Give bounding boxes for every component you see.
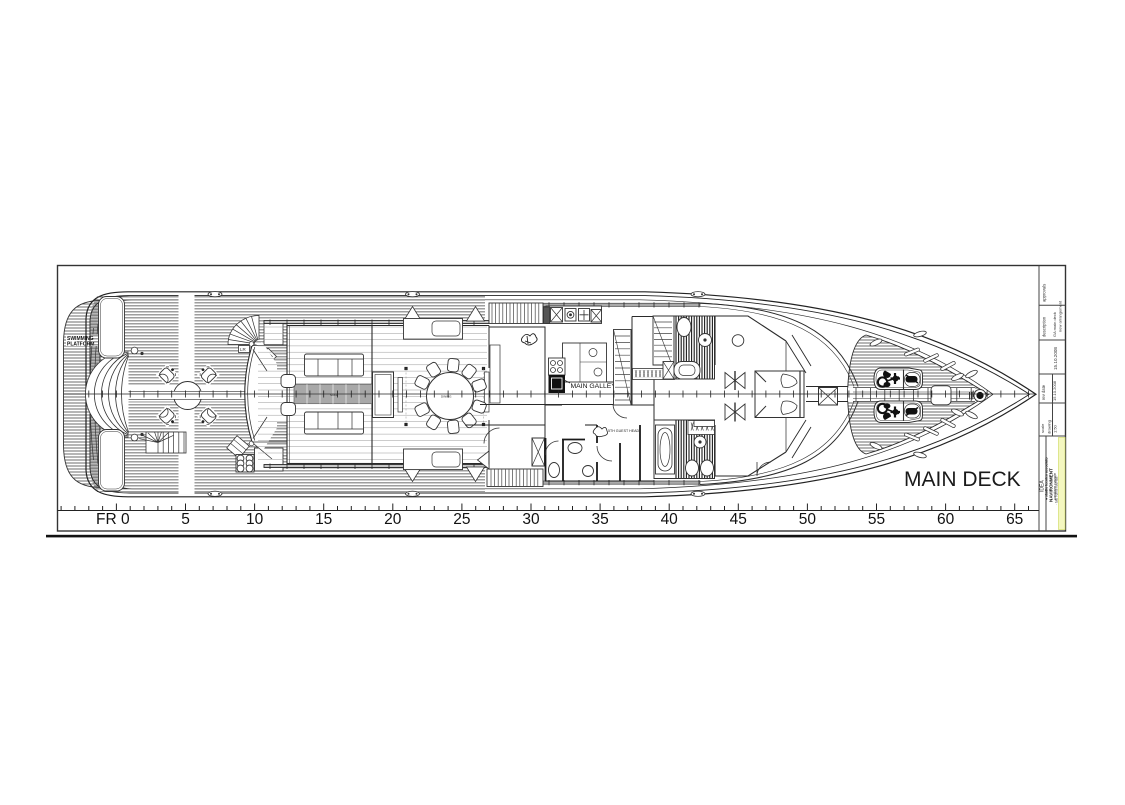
- svg-text:GA main deck: GA main deck: [1052, 312, 1057, 337]
- svg-text:5TH GUEST HEAD: 5TH GUEST HEAD: [608, 429, 639, 433]
- svg-text:15.10.2008: 15.10.2008: [1053, 347, 1058, 370]
- svg-text:55: 55: [868, 511, 885, 528]
- svg-text:15.10.2008: 15.10.2008: [1052, 380, 1057, 401]
- svg-text:MAIN GALLEY: MAIN GALLEY: [571, 383, 617, 390]
- svg-text:● studio tecnico associato: ● studio tecnico associato: [1045, 457, 1049, 500]
- svg-text:5: 5: [181, 511, 190, 528]
- svg-text:LR: LR: [240, 347, 247, 352]
- svg-text:drawing: drawing: [1047, 420, 1052, 434]
- svg-text:· tutti i diritti riservati ·: · tutti i diritti riservati ·: [1055, 475, 1059, 505]
- svg-text:NAVIRONMENT: NAVIRONMENT: [1049, 468, 1054, 502]
- svg-text:DINING: DINING: [441, 395, 452, 399]
- svg-text:approvals: approvals: [1042, 284, 1047, 302]
- svg-text:40: 40: [661, 511, 679, 528]
- svg-text:new arrangement: new arrangement: [1058, 300, 1063, 332]
- svg-text:20: 20: [384, 511, 402, 528]
- svg-text:25: 25: [453, 511, 470, 528]
- svg-text:60: 60: [937, 511, 955, 528]
- svg-text:MAIN DECK: MAIN DECK: [904, 468, 1021, 491]
- svg-text:65: 65: [1006, 511, 1023, 528]
- svg-text:10: 10: [246, 511, 264, 528]
- svg-text:FR 0: FR 0: [96, 511, 130, 528]
- svg-text:rev date: rev date: [1041, 384, 1046, 400]
- svg-text:15: 15: [315, 511, 332, 528]
- svg-text:35: 35: [591, 511, 608, 528]
- svg-text:1:50: 1:50: [1053, 424, 1058, 433]
- svg-text:description: description: [1042, 316, 1047, 337]
- svg-text:45: 45: [730, 511, 747, 528]
- svg-text:50: 50: [799, 511, 817, 528]
- svg-text:30: 30: [522, 511, 540, 528]
- svg-text:scale: scale: [1040, 423, 1045, 433]
